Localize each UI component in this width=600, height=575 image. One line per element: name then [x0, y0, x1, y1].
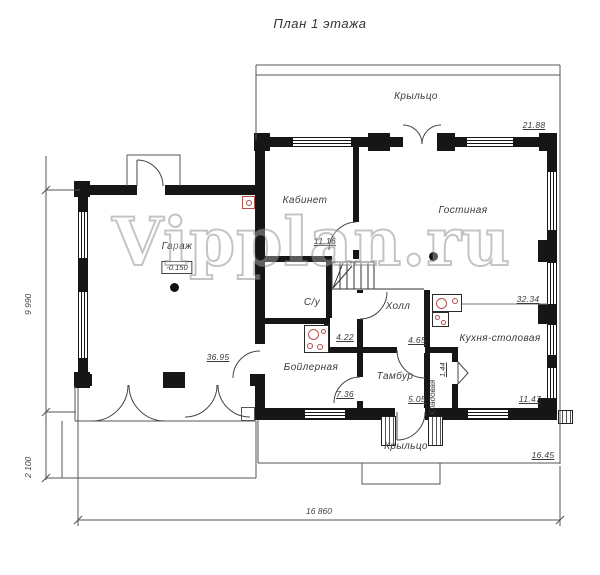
plan-linework [0, 0, 600, 575]
room-label-tambur: Тамбур [377, 371, 414, 382]
room-label-boilernaya: Бойлерная [284, 362, 338, 373]
door-arc-porch-entrance [403, 125, 441, 144]
door-arc-garage-niche [137, 160, 163, 186]
door-arc-holl [360, 292, 387, 319]
room-label-su: С/у [304, 297, 320, 308]
area-tambur: 5.05 [408, 394, 426, 404]
door-arc-porch-exit [397, 412, 425, 440]
garage-gate-left-arcs [92, 385, 165, 421]
room-label-porch-top: Крыльцо [394, 91, 438, 102]
kladovaya-door-triangle [458, 362, 468, 384]
garage-gate-right-arcs [185, 385, 250, 417]
watermark: Vipplan.ru [112, 203, 511, 281]
area-su: 4.22 [336, 332, 354, 342]
area-garage: 36.95 [207, 352, 230, 362]
garage-apron-outline [62, 386, 256, 478]
porch-bottom-outline [258, 420, 560, 484]
dim-porch-height: 2 100 [23, 457, 33, 478]
area-kitchen: 11.47 [519, 394, 541, 404]
entry-niche-outline [127, 155, 180, 186]
area-porch-top: 21.88 [523, 120, 546, 130]
page-title: План 1 этажа [273, 16, 366, 31]
room-label-holl: Холл [386, 301, 411, 312]
room-label-kladovaya: Кладовая [428, 380, 437, 415]
dim-total-width: 16 860 [306, 506, 332, 516]
door-arc-garage-boiler [233, 351, 260, 378]
area-holl: 4.65 [408, 335, 426, 345]
dim-main-height: 9 990 [23, 294, 33, 315]
area-porch-bottom: 16.45 [532, 450, 555, 460]
area-boilernaya: 7.36 [336, 389, 354, 399]
room-label-porch-bottom: Крыльцо [384, 441, 428, 452]
room-label-kitchen: Кухня-столовая [459, 333, 540, 344]
floor-plan: План 1 этажа Vipplan.ru Крыльцо 21.88 Ка… [0, 0, 600, 575]
area-kladovaya: 1.44 [438, 362, 447, 377]
area-gostinaya: 32.34 [517, 294, 540, 304]
